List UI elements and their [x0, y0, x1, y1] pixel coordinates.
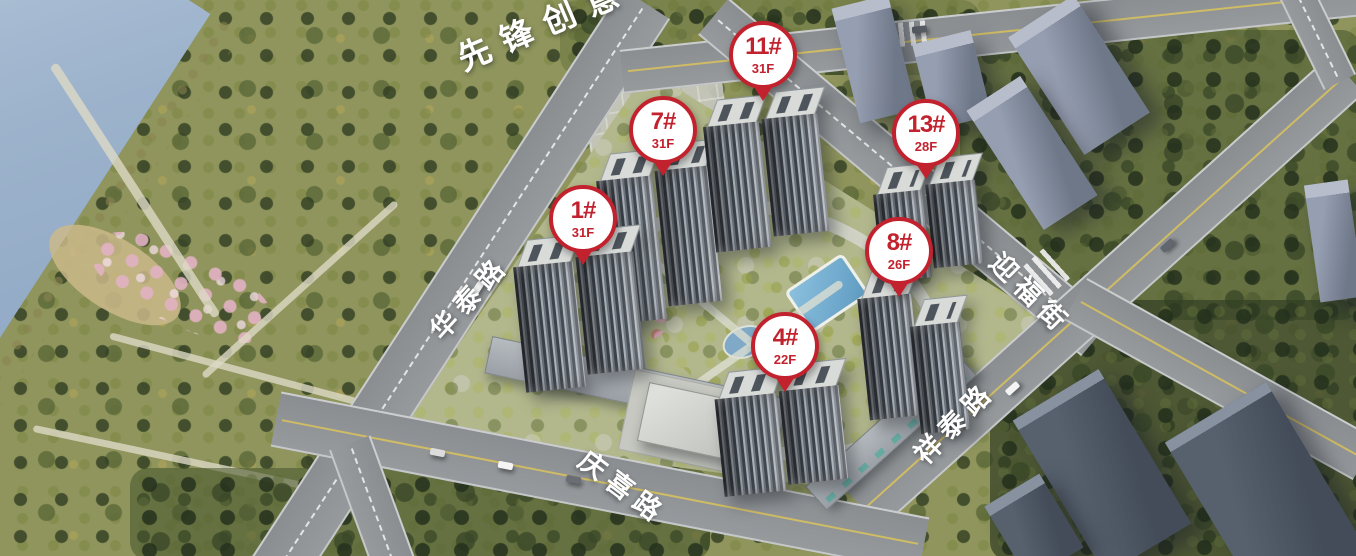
building-marker-7[interactable]: 7# 31F: [629, 96, 697, 176]
marker-bubble: 4# 22F: [751, 312, 819, 380]
building-marker-13[interactable]: 13# 28F: [892, 99, 960, 179]
marker-bubble: 8# 26F: [865, 217, 933, 285]
building-floors: 31F: [572, 226, 594, 239]
tower-facade: [575, 251, 645, 374]
tower-facade: [715, 393, 787, 497]
building-number: 7#: [651, 110, 676, 134]
building-floors: 26F: [888, 258, 910, 271]
building-floors: 28F: [915, 140, 937, 153]
marker-bubble: 11# 31F: [729, 21, 797, 89]
building-marker-1[interactable]: 1# 31F: [549, 185, 617, 265]
building-marker-8[interactable]: 8# 26F: [865, 217, 933, 297]
marker-bubble: 1# 31F: [549, 185, 617, 253]
marker-bubble: 7# 31F: [629, 96, 697, 164]
building-number: 11#: [745, 35, 781, 59]
tower-facade: [779, 385, 848, 485]
building-marker-4[interactable]: 4# 22F: [751, 312, 819, 392]
building-floors: 22F: [774, 353, 796, 366]
marker-bubble: 13# 28F: [892, 99, 960, 167]
tower-facade: [925, 180, 984, 269]
building-floors: 31F: [652, 137, 674, 150]
building-number: 4#: [773, 326, 798, 350]
building-marker-11[interactable]: 11# 31F: [729, 21, 797, 101]
site-plan-rendering: 先锋创意 华泰路 迎福街 祥泰路 庆喜路 11# 31F 7# 31F 13# …: [0, 0, 1356, 556]
building-number: 13#: [907, 113, 944, 137]
building-number: 8#: [887, 231, 912, 255]
building-number: 1#: [571, 199, 596, 223]
building-floors: 31F: [752, 62, 774, 75]
